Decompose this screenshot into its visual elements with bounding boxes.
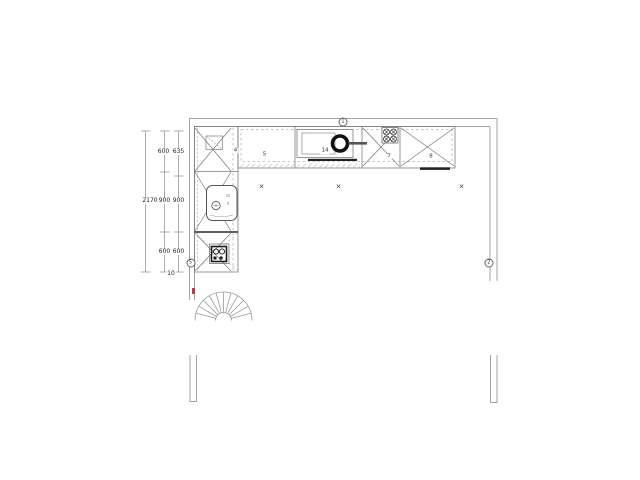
dim-outer-top: 635 — [172, 149, 185, 155]
floor-plan-canvas: 600 635 2170 900 900 600 600 10 4 5 14 7… — [0, 0, 640, 480]
gas-hob-icon — [382, 128, 398, 144]
fan-stair-symbol — [195, 292, 252, 321]
sink-note-2: 3 — [227, 202, 229, 205]
dim-gap: 10 — [166, 271, 176, 277]
right-cabinet-unit — [401, 128, 454, 170]
cabinet-handle-bar — [420, 167, 450, 170]
plan-linework — [0, 0, 640, 480]
round-sink-unit — [297, 130, 367, 162]
wall-marker-top: 1 — [339, 117, 348, 126]
dim-total: 2170 — [141, 198, 158, 204]
floor-cross-mark: × — [259, 184, 265, 191]
dim-inner-top: 600 — [157, 149, 170, 155]
small-appliance — [210, 244, 230, 264]
unit-label-counter: 5 — [262, 152, 268, 158]
dim-inner-mid: 900 — [158, 198, 171, 204]
unit-label-hob: 7 — [386, 154, 392, 160]
dim-inner-bottom: 600 — [158, 249, 171, 255]
kitchen-sink — [207, 186, 238, 221]
wall-marker-left: 5 — [186, 258, 195, 267]
unit-label-sink-run: 14 — [321, 148, 330, 154]
sink-note-1: 12 — [226, 194, 230, 197]
unit-label-corner: 4 — [233, 148, 239, 154]
hob-unit — [363, 128, 399, 167]
sink-front-bar — [308, 159, 357, 161]
wall-marker-right: 2 — [485, 259, 494, 268]
red-wall-tick — [192, 288, 195, 294]
counter-edge-hatch — [240, 164, 360, 168]
dim-outer-mid: 900 — [172, 198, 185, 204]
unit-label-cabinet: 8 — [428, 154, 434, 160]
dim-outer-bottom: 600 — [172, 249, 185, 255]
floor-cross-mark: × — [459, 184, 465, 191]
bowl-handle-icon — [349, 142, 368, 145]
floor-cross-mark: × — [336, 184, 342, 191]
